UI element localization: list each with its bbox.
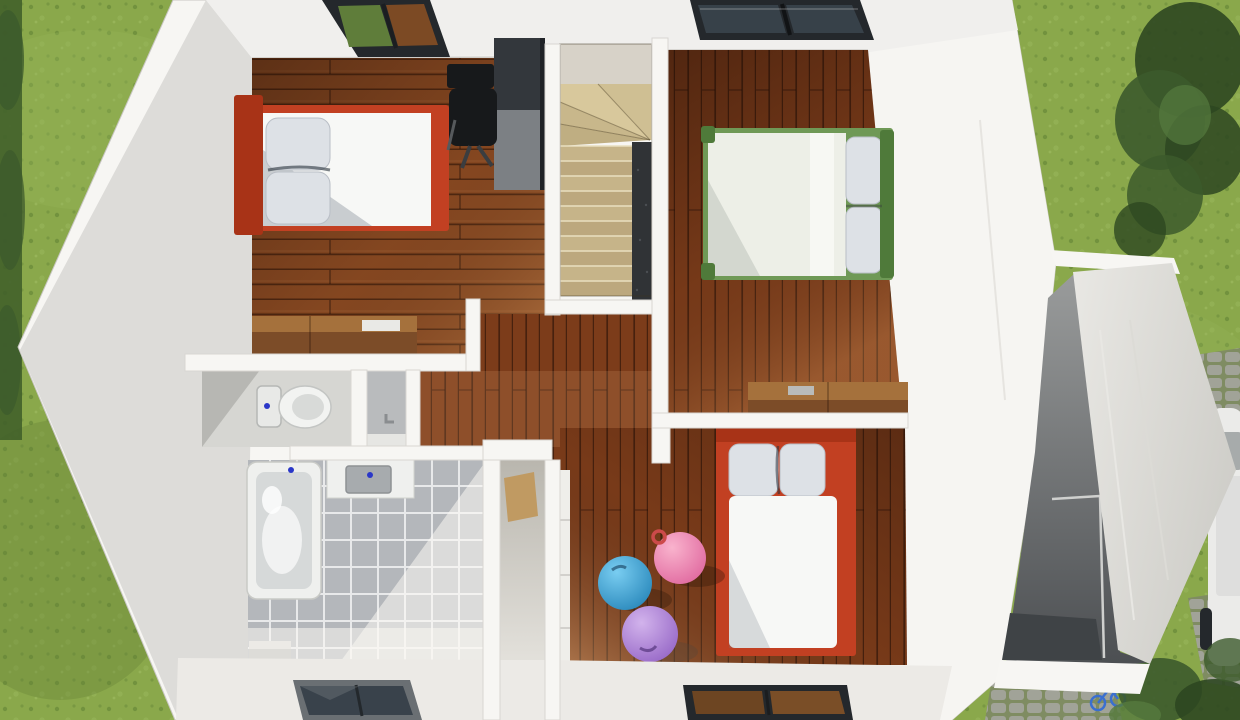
corridor-door <box>504 472 538 522</box>
bath-foam <box>262 506 302 574</box>
bath-foam <box>262 486 282 514</box>
ball-pink <box>654 532 706 584</box>
straight-treads <box>560 146 632 296</box>
sideboard-item <box>362 320 400 331</box>
bottom-floor-band <box>176 658 952 720</box>
stair-void <box>632 142 652 300</box>
bed-1-pillow <box>266 118 330 170</box>
wall-vestibule <box>466 299 480 371</box>
shower-curb <box>367 434 406 447</box>
bedroom-1 <box>234 38 545 357</box>
wc-room <box>202 370 351 447</box>
car-wheel-rear <box>1200 608 1212 650</box>
bed-2-corner-post <box>701 263 715 280</box>
wall-bedroom2-south <box>652 413 908 428</box>
bed-1 <box>234 95 449 235</box>
wall-stair-west <box>545 44 560 315</box>
bed-1-headboard <box>234 95 263 235</box>
stairwell <box>560 44 652 300</box>
wall-stair-south <box>545 300 668 314</box>
winder-steps <box>560 84 652 146</box>
wall-wc-east <box>351 370 367 447</box>
bed-2-pillow <box>846 137 882 204</box>
bed-3-pillow <box>780 444 825 496</box>
skylight-4 <box>683 685 853 720</box>
ball-purple <box>622 606 678 662</box>
garage-wall-bottom <box>994 660 1150 694</box>
bed-3 <box>716 428 856 656</box>
bedroom-2 <box>665 50 908 428</box>
bed-3-headboard <box>716 428 856 442</box>
hedge <box>0 0 25 440</box>
wall-bathroom-north <box>290 446 483 460</box>
bathroom <box>247 460 483 669</box>
laptop <box>447 64 494 88</box>
flush-button <box>264 403 270 409</box>
ball-blue <box>598 556 652 610</box>
floor-plan-render <box>0 0 1240 720</box>
vanity-sink <box>327 460 414 498</box>
sink-drain <box>367 472 373 478</box>
bed-2-headboard <box>880 130 894 278</box>
bed-3-pillow <box>729 444 778 496</box>
dresser-item <box>788 386 814 395</box>
wall-bedroom3-west <box>545 460 560 720</box>
wall-corridor-west <box>483 460 500 720</box>
bathtub <box>247 462 321 599</box>
tub-drain <box>288 467 294 473</box>
wall-corridor-north <box>483 440 552 460</box>
desk-side <box>540 38 545 190</box>
wall-stall-east <box>406 370 420 447</box>
bed-2-pillow <box>846 207 882 273</box>
toilet <box>257 386 331 428</box>
desk <box>494 38 545 190</box>
sideboard <box>252 316 417 357</box>
toilet-seat <box>292 394 324 420</box>
wall-bedroom2-west <box>652 38 668 414</box>
floor-plan-scene <box>0 0 1240 720</box>
skylight-3 <box>293 680 422 720</box>
skylight-2 <box>690 0 874 40</box>
terrace-floor <box>1002 613 1102 660</box>
bed-2-sheet-fold <box>810 133 834 276</box>
bed-1-pillow <box>266 172 330 224</box>
shower-stall <box>367 370 406 447</box>
bed-2 <box>701 126 894 280</box>
bed-2-corner-post <box>701 126 715 143</box>
wall-stub <box>652 428 670 463</box>
bedroom-3 <box>545 428 907 680</box>
stair-landing <box>560 44 652 86</box>
wall-bedroom1-south <box>185 354 468 371</box>
